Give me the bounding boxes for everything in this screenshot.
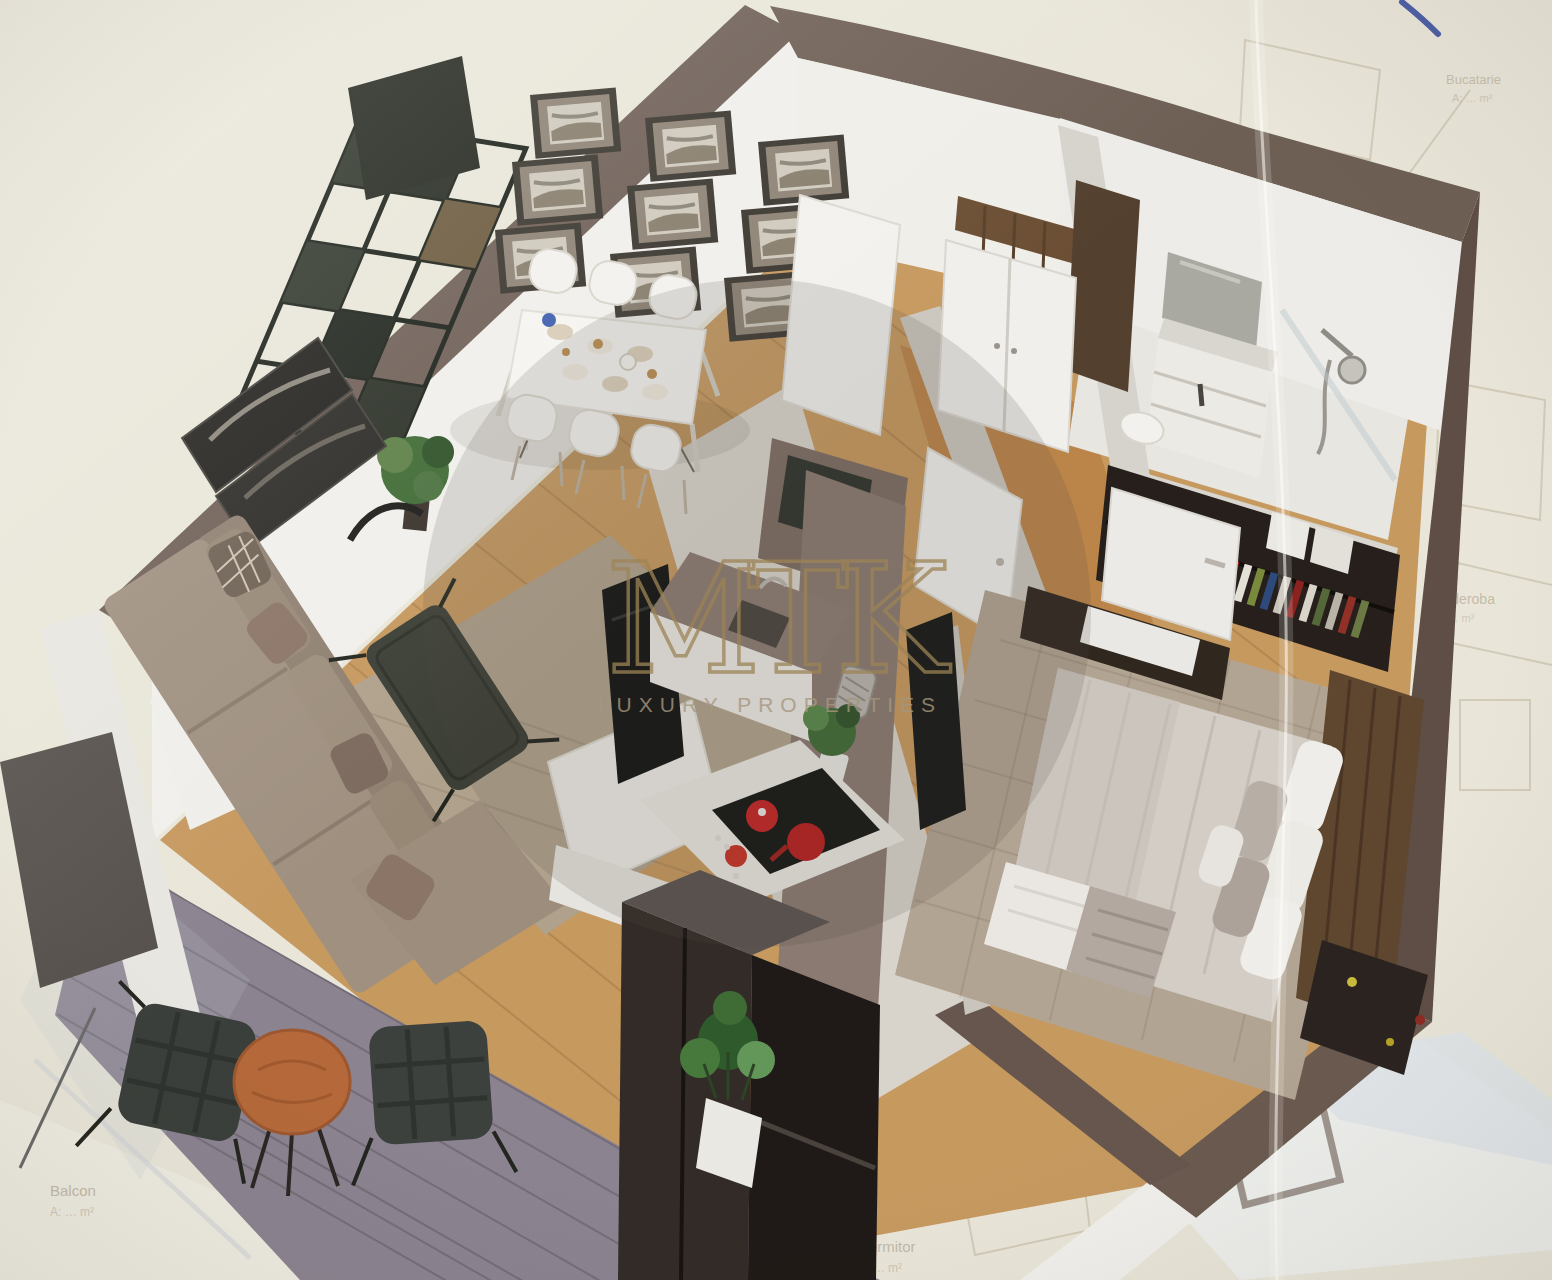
floor-plan-render: Balcon A: … m² Dormitor A: … m² Bucatari…	[0, 0, 1552, 1280]
photo-vignette	[0, 0, 1552, 1280]
floor-plan-photo: Balcon A: … m² Dormitor A: … m² Bucatari…	[0, 0, 1552, 1280]
